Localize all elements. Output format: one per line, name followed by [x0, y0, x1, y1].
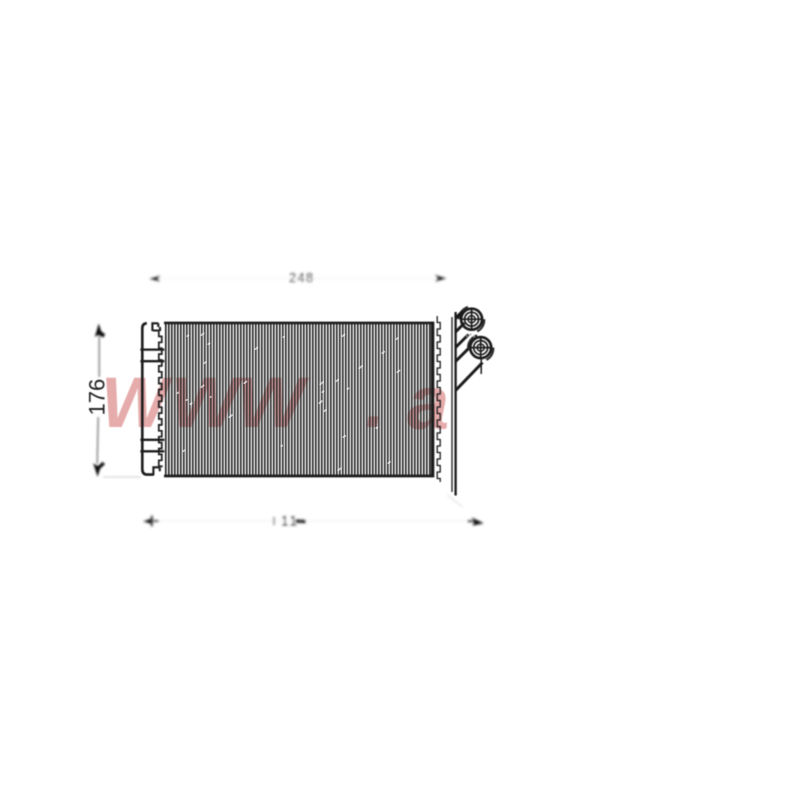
svg-text:248: 248	[289, 270, 314, 285]
svg-text:176: 176	[85, 379, 110, 416]
svg-text:W: W	[101, 364, 174, 443]
